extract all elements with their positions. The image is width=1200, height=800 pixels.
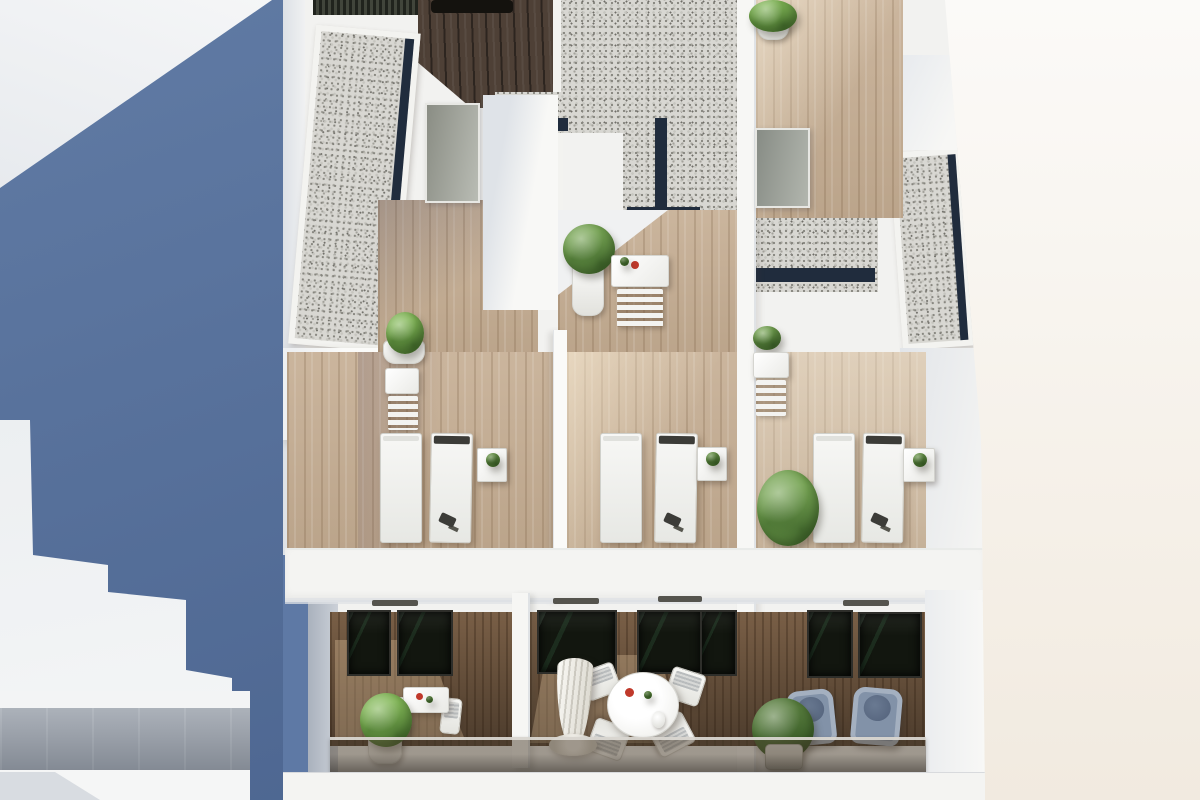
bistro-table-left-terrace: [385, 368, 419, 394]
sliding-glass-door: [700, 610, 737, 676]
ac-vent-slot: [553, 598, 599, 604]
ac-vent-slot: [372, 600, 418, 606]
neighbor-base-wall: [0, 770, 250, 800]
neighbor-glass-band: [0, 708, 250, 770]
balcony-right-side-wall: [925, 590, 985, 800]
bistro-stool-left-terrace: [388, 396, 418, 430]
bistro-table-plant-item: [620, 257, 629, 266]
table-red-flower: [625, 688, 634, 697]
terrace-bush-right: [757, 470, 819, 546]
apartment-building: [283, 0, 985, 800]
bistro-table-red-item: [631, 261, 639, 269]
bistro-stools-center-terrace: [617, 289, 663, 327]
sliding-glass-door: [397, 610, 453, 676]
plant-center-terrace: [563, 224, 615, 274]
sun-lounger: [813, 433, 855, 543]
glass-balustrade: [330, 737, 926, 775]
lounger-side-table: [697, 447, 727, 481]
sun-lounger: [380, 433, 422, 543]
rooftop-wall-block-center: [483, 95, 558, 310]
bistro-stool-right-terrace: [756, 380, 786, 416]
sliding-glass-door: [637, 610, 703, 674]
sun-lounger: [429, 433, 473, 544]
plant-right-terrace: [749, 0, 797, 32]
table-green-item: [644, 691, 652, 699]
roof-deck-furniture: [431, 0, 513, 13]
terrace-front-parapet: [285, 548, 985, 602]
sun-lounger: [600, 433, 642, 543]
ac-vent-slot: [843, 600, 889, 606]
round-dining-table: [607, 672, 679, 738]
ac-vent-slot: [658, 596, 702, 602]
glass-door-left-terrace: [425, 103, 480, 203]
lounger-side-table: [477, 448, 507, 482]
planter-bush-left-terrace: [386, 312, 424, 354]
square-table-plant-item: [426, 696, 433, 703]
sun-lounger: [654, 433, 698, 544]
roof-deck-dark-wood: [418, 0, 558, 108]
sun-lounger: [861, 433, 905, 544]
neighbor-parapet-band: [0, 691, 250, 708]
table-white-jug: [652, 711, 665, 728]
side-table-plant: [706, 452, 720, 466]
sliding-glass-door: [858, 612, 922, 678]
building-bottom-rim: [283, 772, 985, 800]
side-table-plant: [486, 453, 500, 467]
bistro-plant-right-terrace: [753, 326, 781, 350]
side-table-plant: [913, 453, 927, 467]
aerial-render-scene: [0, 0, 1200, 800]
sliding-glass-door: [807, 610, 853, 678]
glass-door-right-terrace: [755, 128, 810, 208]
gravel-navy-strip-2: [655, 118, 667, 218]
square-table-red-item: [416, 693, 423, 700]
bistro-table-right-terrace: [753, 352, 789, 378]
sliding-glass-door: [347, 610, 391, 676]
lounger-side-table: [903, 448, 935, 482]
